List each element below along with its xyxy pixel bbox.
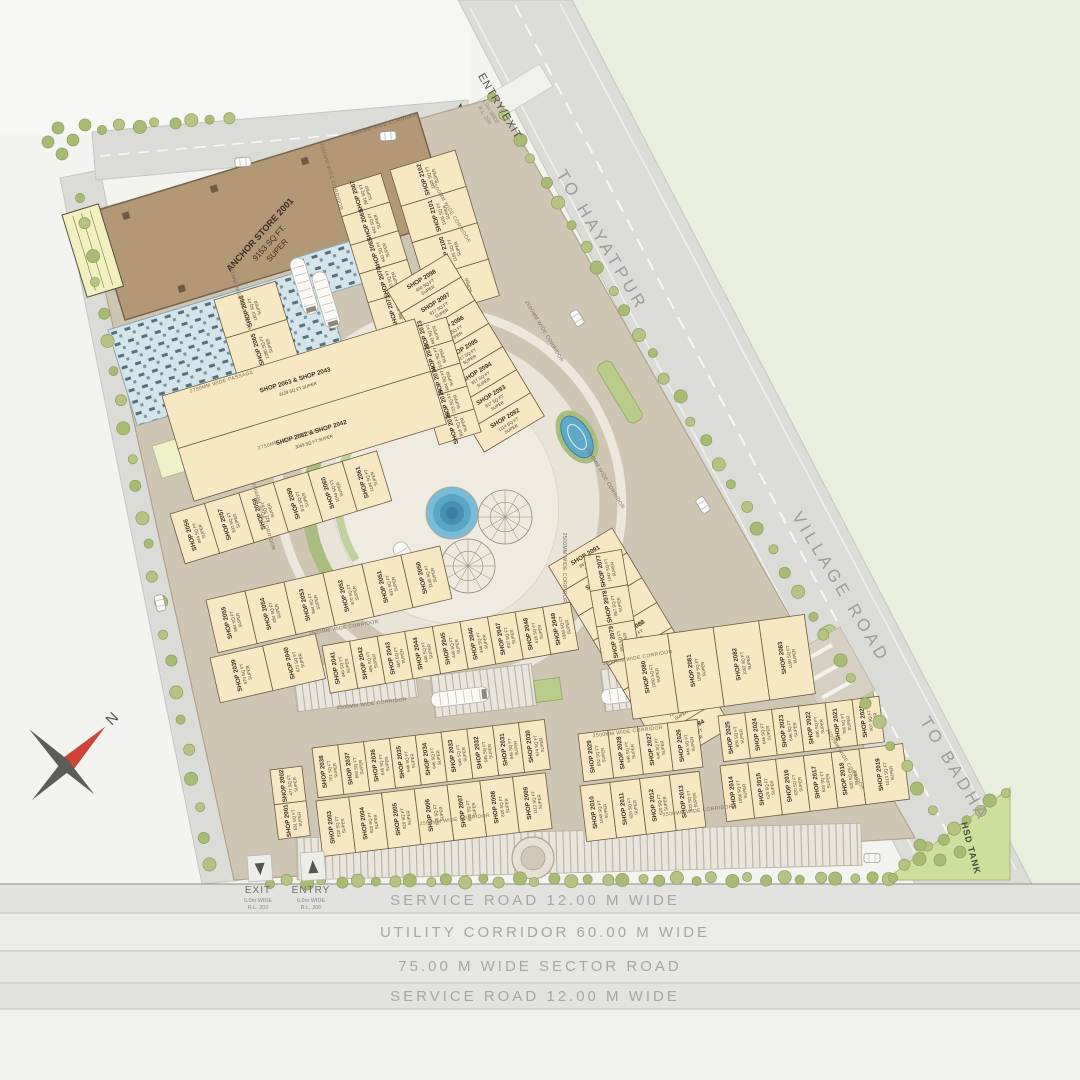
tree-icon	[67, 134, 79, 146]
tree-icon	[117, 422, 130, 435]
tree-icon	[513, 872, 526, 885]
tree-icon	[493, 877, 504, 888]
tree-icon	[914, 839, 926, 851]
tree-icon	[1001, 789, 1010, 798]
tree-icon	[97, 125, 106, 134]
tree-icon	[158, 630, 167, 639]
tree-icon	[769, 545, 778, 554]
tree-icon	[726, 874, 739, 887]
tree-icon	[184, 772, 197, 785]
tree-icon	[459, 876, 472, 889]
tree-icon	[541, 177, 552, 188]
tree-icon	[176, 715, 185, 724]
tree-icon	[113, 119, 124, 130]
tree-icon	[203, 858, 216, 871]
tree-icon	[403, 874, 416, 887]
tree-icon	[101, 334, 114, 347]
band-label-service-road-bottom: SERVICE ROAD 12.00 M WIDE	[390, 988, 680, 1005]
tree-icon	[590, 261, 603, 274]
tree-icon	[809, 612, 818, 621]
tree-icon	[170, 686, 183, 699]
tree-icon	[144, 539, 153, 548]
fountain-icon	[426, 487, 478, 539]
tree-icon	[860, 698, 871, 709]
tree-icon	[115, 395, 126, 406]
tree-icon	[198, 832, 209, 843]
tree-icon	[928, 806, 937, 815]
tree-icon	[742, 501, 753, 512]
tree-icon	[170, 118, 181, 129]
exit-gate-label: EXIT 6.0m WIDE R.L. 200	[244, 885, 272, 911]
tree-icon	[549, 873, 560, 884]
tree-icon	[390, 876, 401, 887]
entry-text: ENTRY	[292, 885, 331, 896]
tree-icon	[726, 480, 735, 489]
tree-icon	[130, 480, 141, 491]
site-plan-canvas: ANCHOR STORE 2001 9153 SQ FT. SUPER	[0, 0, 1080, 1080]
tree-icon	[609, 287, 618, 296]
tree-icon	[654, 875, 665, 886]
tree-icon	[888, 873, 897, 882]
tree-icon	[551, 196, 564, 209]
tree-icon	[818, 629, 829, 640]
tree-icon	[761, 875, 772, 886]
tree-icon	[947, 822, 960, 835]
tree-icon	[224, 113, 235, 124]
tree-icon	[90, 277, 99, 286]
tree-icon	[910, 782, 923, 795]
corridor-label: 2500MM WIDE CORRIDOR	[561, 533, 567, 604]
exit-text: EXIT	[245, 885, 271, 896]
tree-icon	[529, 877, 538, 886]
tree-icon	[52, 122, 64, 134]
car-icon	[864, 854, 880, 863]
tree-icon	[899, 859, 910, 870]
tree-icon	[846, 673, 855, 682]
tree-icon	[816, 872, 827, 883]
car-icon	[380, 131, 397, 141]
tree-icon	[701, 435, 712, 446]
tree-icon	[146, 571, 157, 582]
tree-icon	[618, 305, 629, 316]
tree-icon	[205, 115, 214, 124]
tree-icon	[427, 878, 436, 887]
tree-icon	[632, 329, 645, 342]
tree-icon	[603, 874, 614, 885]
tree-icon	[136, 512, 149, 525]
tree-icon	[128, 455, 137, 464]
tree-icon	[692, 876, 701, 885]
tree-icon	[184, 744, 195, 755]
tree-icon	[565, 875, 578, 888]
band-label-utility-corridor: UTILITY CORRIDOR 60.00 M WIDE	[380, 924, 710, 941]
tree-icon	[133, 120, 146, 133]
tree-icon	[778, 871, 791, 884]
tree-icon	[75, 193, 84, 202]
tree-icon	[581, 241, 592, 252]
tree-icon	[351, 874, 364, 887]
tree-icon	[743, 872, 752, 881]
tree-icon	[371, 877, 380, 886]
tree-icon	[525, 154, 534, 163]
tree-icon	[934, 854, 946, 866]
exit-rl-note: R.L. 200	[248, 905, 269, 911]
tree-icon	[792, 585, 805, 598]
entry-width-note: 6.0m WIDE	[297, 898, 325, 904]
tree-icon	[873, 715, 886, 728]
tree-icon	[196, 802, 205, 811]
tree-icon	[281, 874, 292, 885]
tree-icon	[954, 846, 966, 858]
tree-icon	[779, 567, 790, 578]
exit-width-note: 6.0m WIDE	[244, 898, 272, 904]
tree-icon	[56, 148, 68, 160]
tree-icon	[938, 834, 949, 845]
tree-icon	[87, 249, 100, 262]
tree-icon	[583, 875, 592, 884]
tree-icon	[913, 853, 926, 866]
tree-icon	[867, 872, 878, 883]
band-label-service-road-top: SERVICE ROAD 12.00 M WIDE	[390, 892, 680, 909]
entry-rl-note: R.L. 200	[301, 905, 322, 911]
tree-icon	[902, 760, 913, 771]
tree-icon	[886, 742, 895, 751]
car-icon	[235, 157, 252, 167]
tree-icon	[712, 458, 725, 471]
tree-icon	[639, 874, 648, 883]
tree-icon	[185, 114, 198, 127]
bottom-road-bands	[0, 884, 1080, 1080]
band-label-sector-road: 75.00 M WIDE SECTOR ROAD	[398, 958, 681, 975]
tree-icon	[479, 874, 488, 883]
tree-icon	[750, 522, 763, 535]
tree-icon	[149, 118, 158, 127]
tree-icon	[567, 221, 576, 230]
tree-icon	[658, 373, 669, 384]
tree-icon	[795, 875, 804, 884]
tree-icon	[166, 655, 177, 666]
tree-icon	[834, 654, 847, 667]
tree-icon	[42, 136, 54, 148]
tree-icon	[616, 873, 629, 886]
tree-icon	[670, 871, 683, 884]
tree-icon	[829, 872, 842, 885]
tree-icon	[851, 874, 860, 883]
tree-icon	[440, 874, 451, 885]
tree-icon	[99, 308, 110, 319]
tree-icon	[648, 348, 657, 357]
tree-icon	[686, 417, 695, 426]
tree-icon	[79, 119, 91, 131]
tree-icon	[674, 390, 687, 403]
site-plan-svg: ANCHOR STORE 2001 9153 SQ FT. SUPER	[0, 0, 1080, 1080]
tree-icon	[109, 366, 118, 375]
tree-icon	[337, 877, 348, 888]
tree-icon	[79, 218, 90, 229]
tree-icon	[705, 872, 716, 883]
bottom-fountain-inner	[521, 846, 545, 870]
